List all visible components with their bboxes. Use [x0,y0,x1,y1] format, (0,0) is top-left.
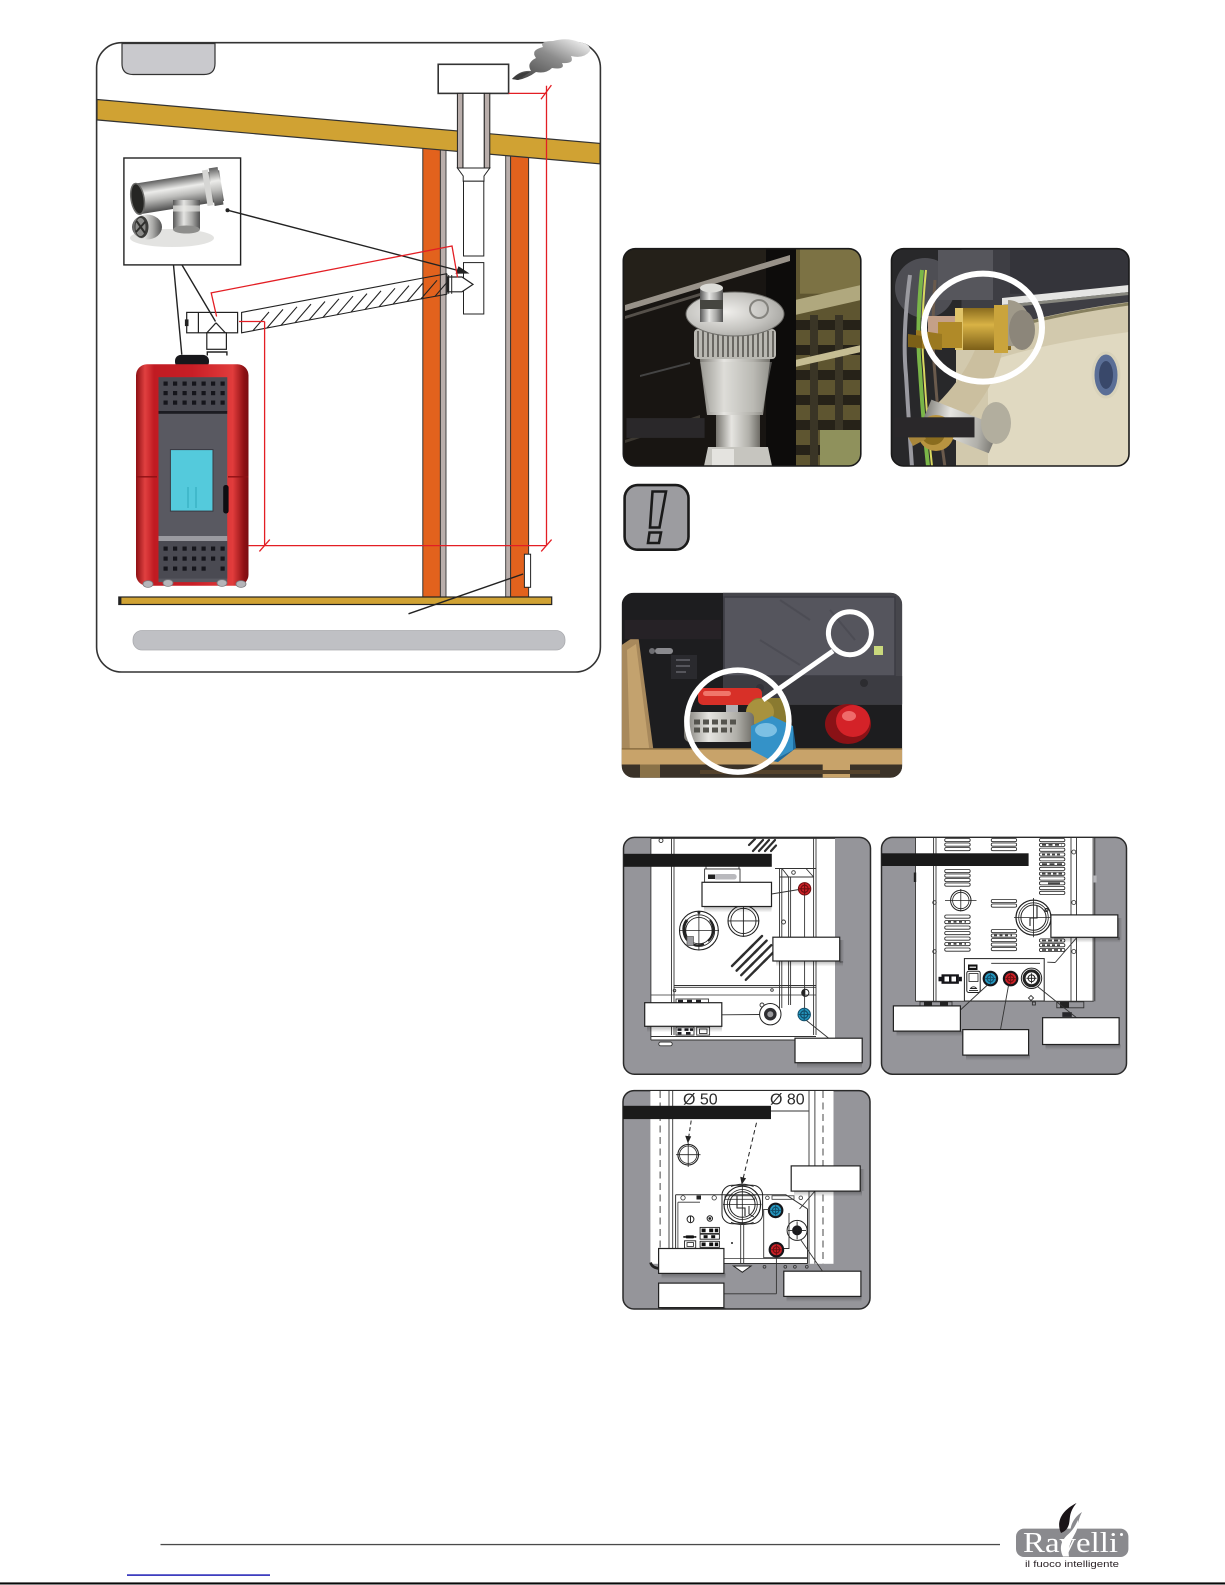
svg-text:il fuoco intelligente: il fuoco intelligente [1025,1559,1119,1570]
svg-text:Ø 80: Ø 80 [770,1092,805,1109]
